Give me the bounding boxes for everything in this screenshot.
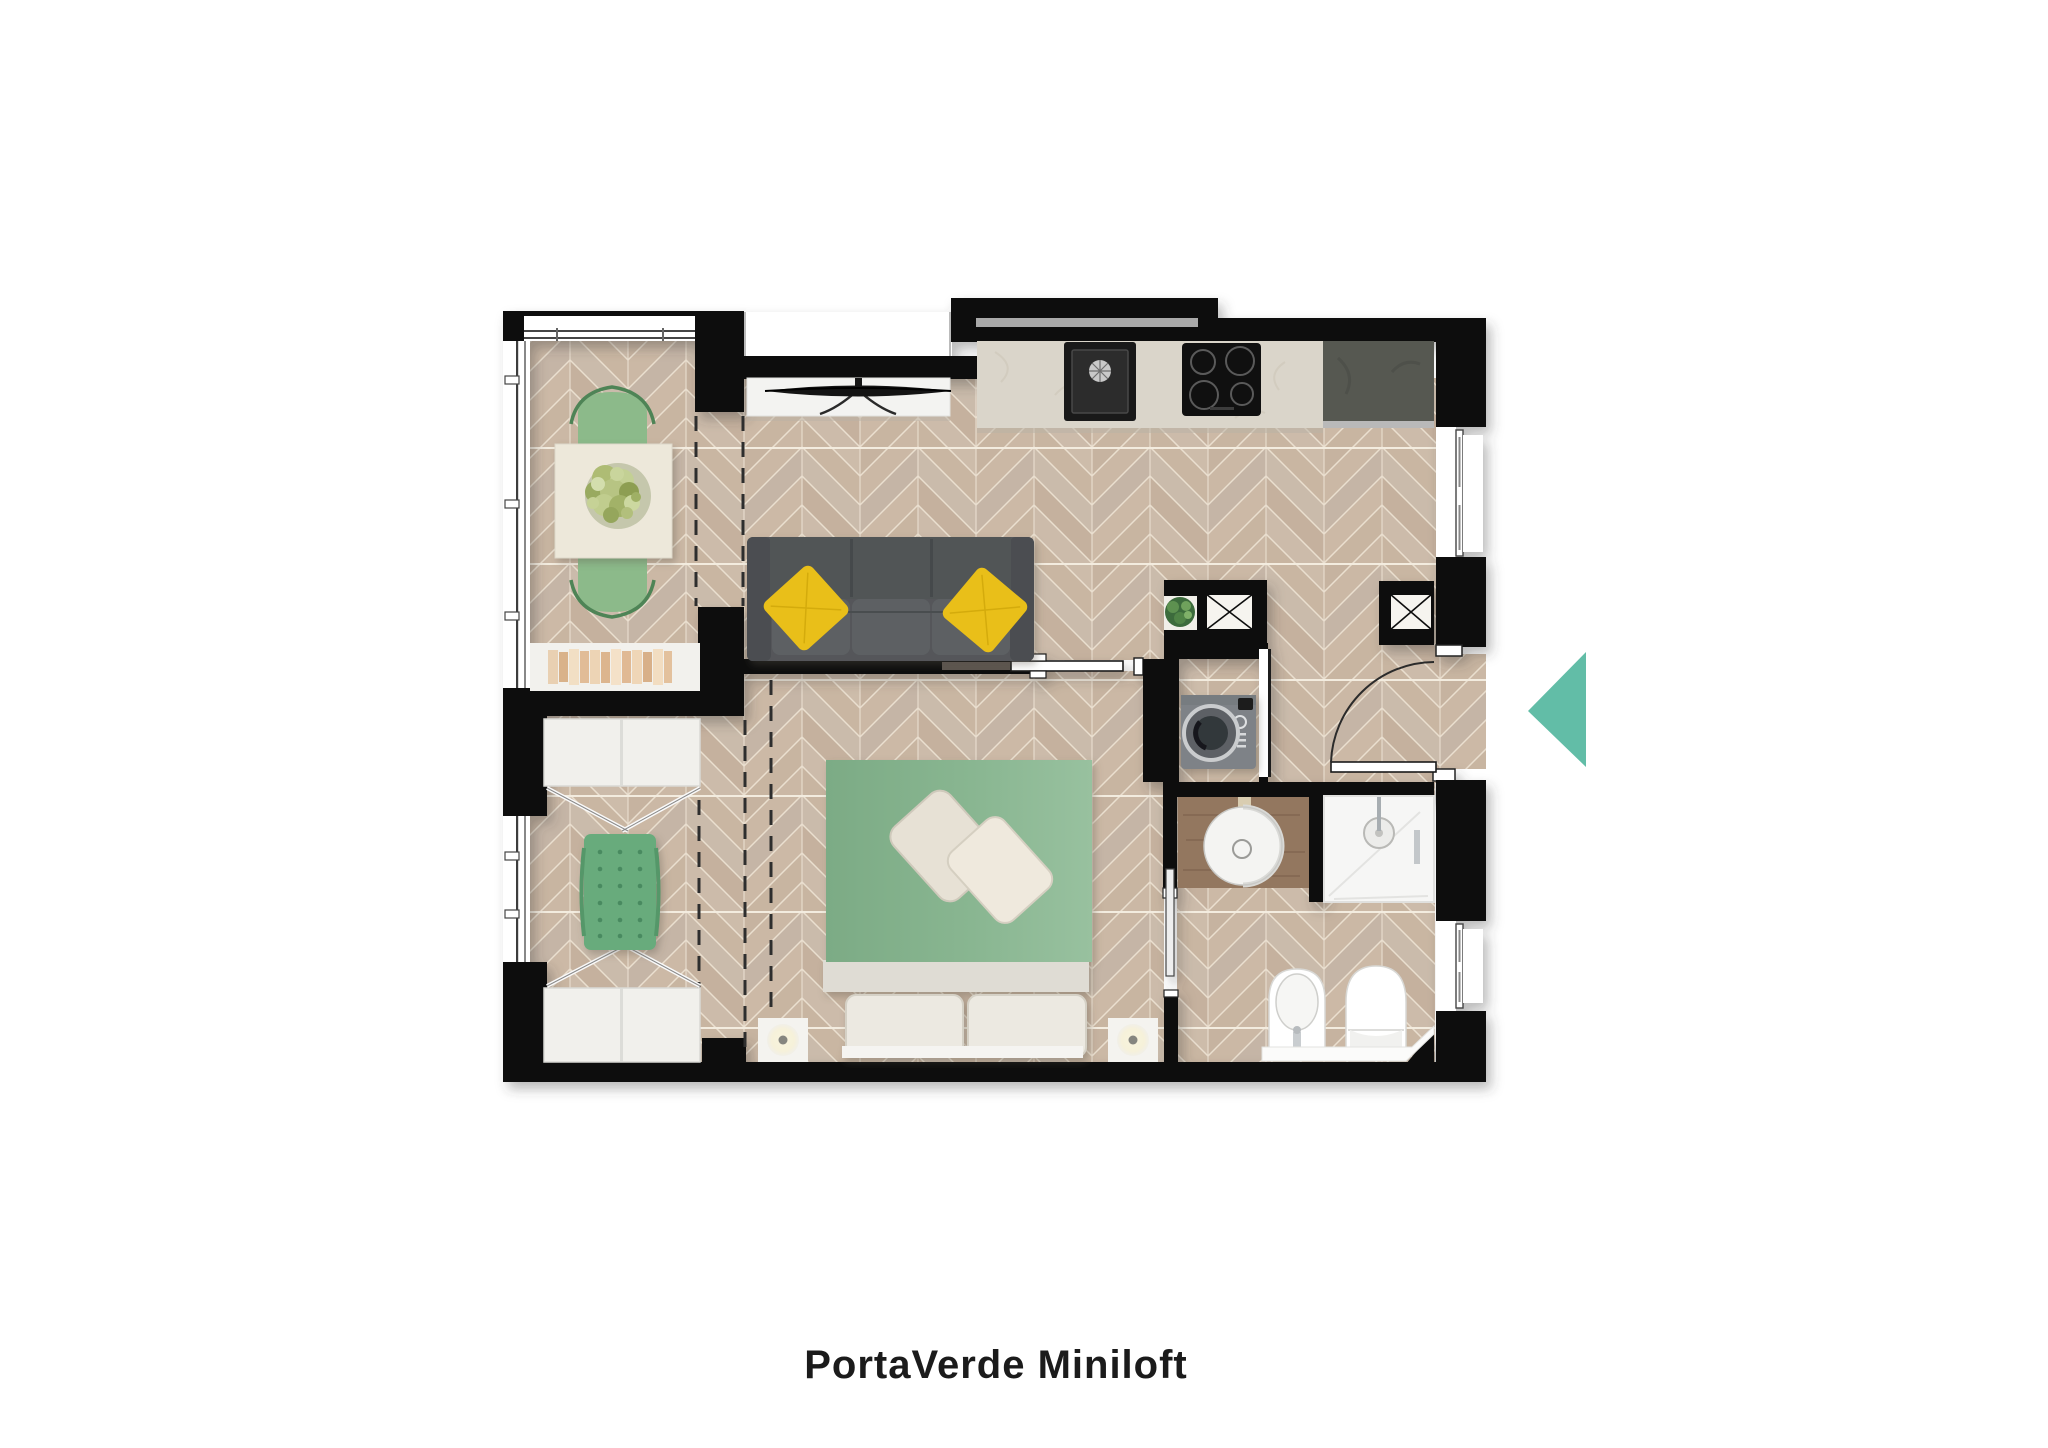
svg-text:PortaVerde Miniloft: PortaVerde Miniloft bbox=[804, 1343, 1188, 1387]
